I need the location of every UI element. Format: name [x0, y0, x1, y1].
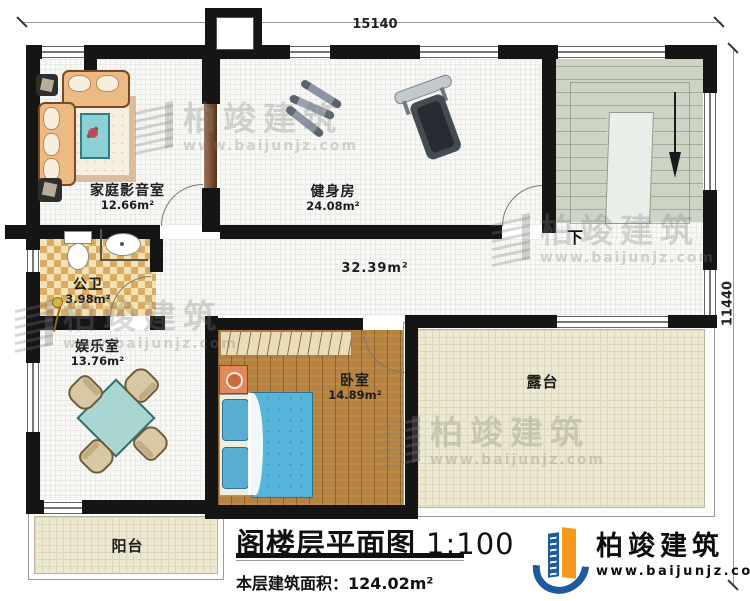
room-area: 13.76m² [35, 355, 160, 368]
room-name: 公卫 [42, 277, 134, 293]
room-area: 12.66m² [60, 199, 195, 212]
room-label-bathroom: 公卫 3.98m² [42, 277, 134, 306]
sofa-pillow [96, 75, 119, 92]
brand-logo-icon [536, 527, 588, 585]
title-underline [236, 553, 464, 558]
wall-segment [668, 315, 717, 328]
floor-plan-canvas: 15140 11440 下 [0, 0, 750, 601]
wall-segment [26, 500, 44, 514]
window [558, 46, 665, 58]
wooden-door [204, 104, 217, 188]
wall-segment [202, 188, 220, 232]
window [704, 93, 716, 190]
wall-segment [26, 316, 110, 330]
floor-area-row: 本层建筑面积：124.02m² [236, 570, 433, 594]
speaker [38, 178, 62, 202]
chimney-flue [216, 17, 254, 50]
title-underline-thin [236, 560, 464, 561]
bed-pillow [222, 399, 249, 441]
dimension-top-value: 15140 [340, 17, 410, 32]
room-name: 阳台 [90, 538, 165, 555]
wall-segment [220, 225, 502, 239]
room-name: 卧室 [295, 373, 415, 389]
wall-segment [202, 59, 220, 104]
brand-name: 柏竣建筑 [596, 533, 750, 560]
logo-tower-orange [562, 527, 576, 579]
sofa-pillow [43, 107, 60, 130]
room-area: 24.08m² [268, 200, 398, 213]
dimension-right-value: 11440 [721, 269, 736, 339]
window [27, 363, 39, 432]
stairs-direction-label: 下 [567, 224, 583, 248]
toilet [67, 243, 89, 270]
wall-segment [703, 45, 717, 93]
window [42, 46, 84, 58]
room-name: 娱乐室 [35, 339, 160, 355]
hallway-floor [165, 316, 205, 330]
terrace-floor [410, 329, 705, 508]
floor-area-value: 124.02m² [348, 574, 433, 593]
wall-segment [82, 500, 205, 514]
wall-segment [405, 318, 418, 510]
sliding-glass-door [557, 316, 668, 328]
stairs-glass-panel [605, 112, 654, 224]
stairs-arrow-head [669, 152, 681, 178]
sofa-pillow [68, 75, 91, 92]
wall-segment [150, 239, 163, 272]
brand-website: www.baijunjz.com [596, 564, 750, 579]
logo-tower-blue [548, 532, 559, 578]
wall-segment [205, 316, 218, 510]
sliding-glass-door [44, 502, 82, 514]
speaker [36, 74, 58, 96]
window [704, 270, 716, 315]
sink-drain [120, 242, 124, 246]
hallway-area-label: 32.39m² [330, 262, 420, 277]
bed-pillow [222, 447, 249, 489]
wall-segment [703, 190, 717, 270]
wall-segment [330, 45, 420, 59]
wardrobe [220, 331, 352, 356]
room-label-entertainment: 娱乐室 13.76m² [35, 339, 160, 368]
window [27, 250, 39, 272]
nightstand [219, 365, 248, 394]
wall-segment [84, 45, 205, 59]
table-flowers [88, 128, 98, 138]
wall-segment [405, 315, 557, 328]
room-label-balcony: 阳台 [90, 538, 165, 555]
room-label-terrace: 露台 [505, 374, 580, 391]
room-area: 3.98m² [42, 293, 134, 306]
wall-segment [498, 45, 558, 59]
brand-logo: 柏竣建筑 www.baijunjz.com [536, 527, 750, 585]
wall-segment [542, 59, 556, 233]
room-area: 14.89m² [295, 389, 415, 402]
sofa-pillow [43, 133, 60, 156]
room-area: 32.39m² [330, 262, 420, 277]
room-label-gym: 健身房 24.08m² [268, 184, 398, 213]
stairs-arrow [674, 92, 676, 154]
wall-segment [218, 318, 363, 330]
room-name: 家庭影音室 [60, 183, 195, 199]
window [420, 46, 498, 58]
room-name: 健身房 [268, 184, 398, 200]
room-name: 露台 [505, 374, 580, 391]
window [290, 46, 330, 58]
wall-segment [205, 505, 418, 519]
wall-segment [150, 316, 165, 330]
floor-area-label: 本层建筑面积： [236, 574, 348, 593]
logo-swoosh [521, 527, 600, 601]
room-label-home-theater: 家庭影音室 12.66m² [60, 183, 195, 212]
room-label-bedroom: 卧室 14.89m² [295, 373, 415, 402]
